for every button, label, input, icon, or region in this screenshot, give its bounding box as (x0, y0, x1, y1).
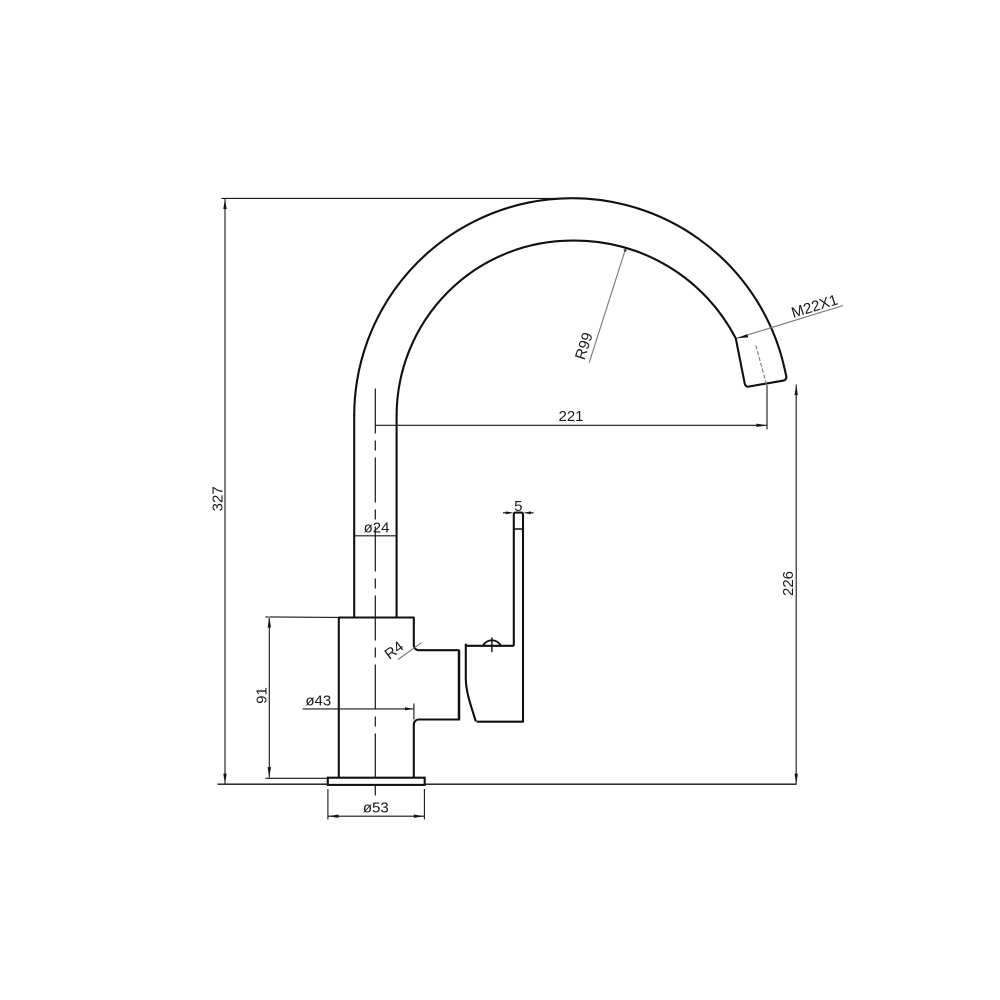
svg-text:327: 327 (209, 486, 226, 511)
svg-text:ø53: ø53 (363, 800, 389, 817)
svg-text:ø24: ø24 (364, 520, 390, 537)
svg-text:91: 91 (253, 687, 270, 704)
svg-text:5: 5 (514, 498, 522, 515)
svg-text:ø43: ø43 (305, 692, 331, 709)
svg-text:221: 221 (558, 408, 583, 425)
svg-text:226: 226 (780, 571, 797, 596)
